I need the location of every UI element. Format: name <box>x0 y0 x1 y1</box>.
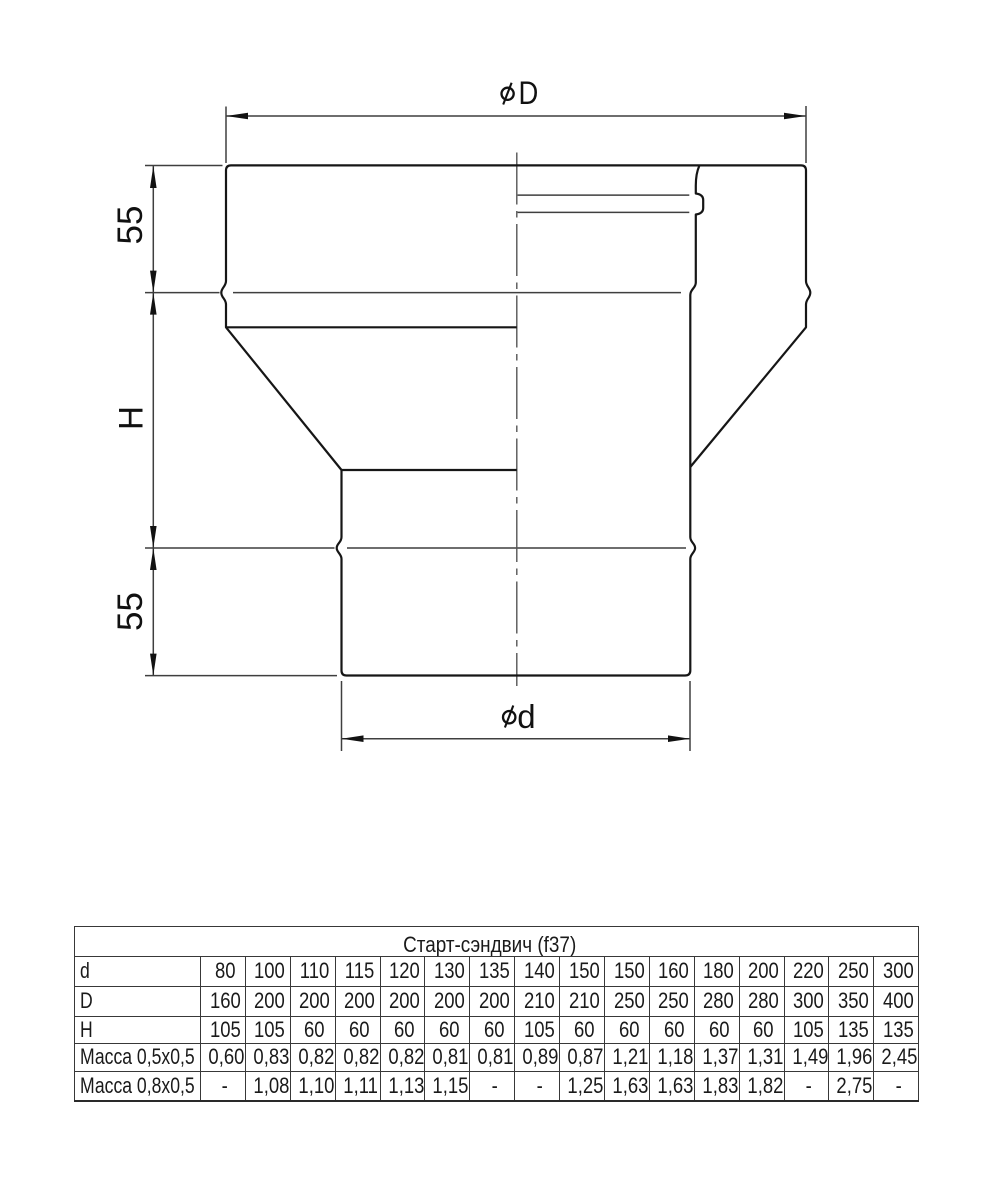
svg-text:55: 55 <box>111 592 150 631</box>
svg-text:55: 55 <box>111 206 150 245</box>
svg-text:H: H <box>113 406 151 430</box>
svg-text:d: d <box>517 698 535 735</box>
svg-text:D: D <box>519 75 539 111</box>
